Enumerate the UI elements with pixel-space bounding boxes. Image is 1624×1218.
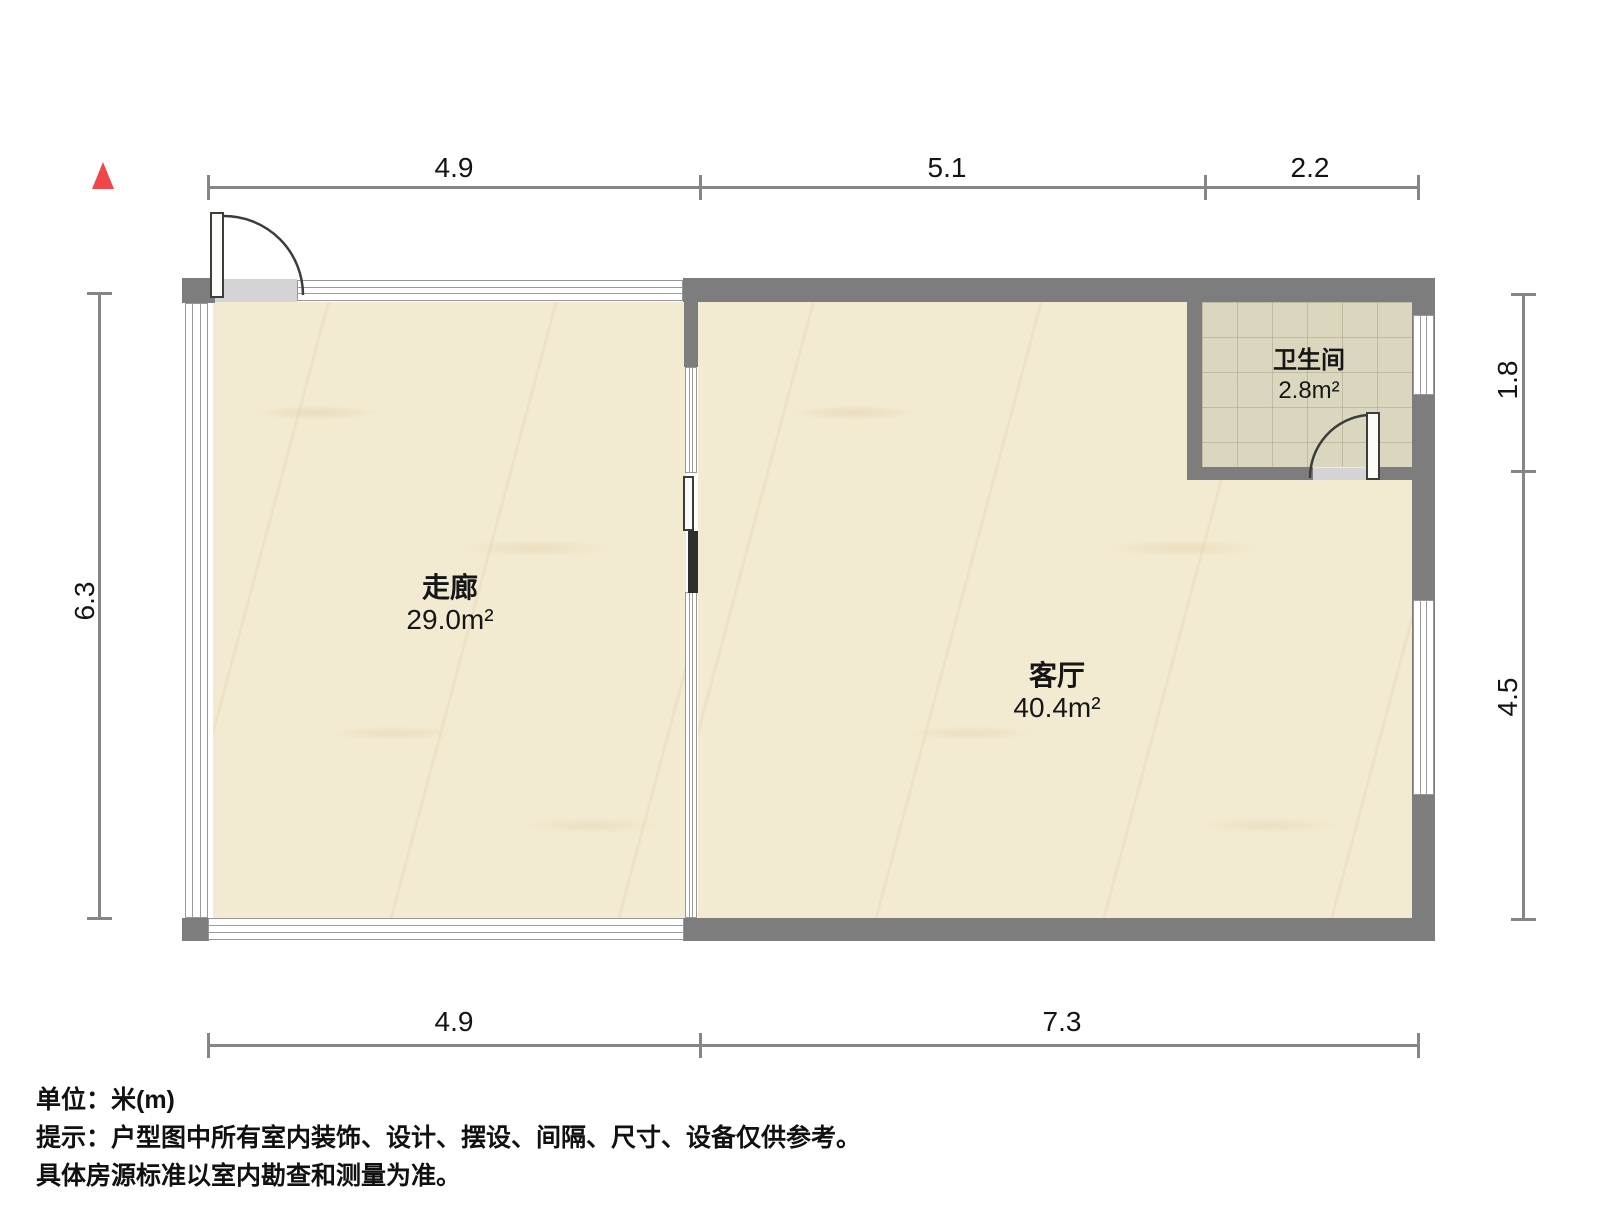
room-name: 卫生间	[1209, 346, 1409, 376]
wall-bottom-left-corner	[182, 918, 209, 941]
wall-bathroom-bottom-right	[1378, 467, 1412, 480]
dim-label-right-1: 1.8	[1493, 320, 1523, 440]
window-bathroom-right	[1413, 315, 1434, 395]
dim-label-bottom-1: 4.9	[354, 1006, 554, 1038]
room-label-corridor: 走廊 29.0m²	[350, 572, 550, 636]
entry-door-threshold	[215, 279, 297, 302]
dim-tick	[1417, 1033, 1420, 1058]
dim-tick	[1417, 175, 1420, 200]
room-name: 走廊	[350, 572, 550, 604]
note-unit: 单位：米(m)	[36, 1080, 175, 1116]
window-partition-lower	[685, 592, 697, 918]
note-tip-line1: 提示：户型图中所有室内装饰、设计、摆设、间隔、尺寸、设备仅供参考。	[36, 1118, 861, 1154]
dim-label-top-1: 4.9	[354, 152, 554, 184]
dim-tick	[207, 175, 210, 200]
room-area: 2.8m²	[1209, 376, 1409, 406]
dim-tick	[87, 292, 112, 295]
wall-bottom-living	[683, 918, 1435, 941]
wall-top-living	[683, 278, 1435, 302]
dim-tick	[207, 1033, 210, 1058]
dim-tick	[87, 917, 112, 920]
sliding-door-panel-light	[683, 476, 694, 531]
dim-line-top	[208, 186, 1420, 189]
dim-tick	[1511, 293, 1536, 296]
dim-tick	[699, 175, 702, 200]
north-arrow-icon	[92, 162, 114, 189]
room-area: 29.0m²	[350, 604, 550, 636]
dim-tick	[699, 1033, 702, 1058]
room-name: 客厅	[957, 660, 1157, 692]
room-area: 40.4m²	[957, 692, 1157, 724]
floorplan-canvas: 4.9 5.1 2.2 4.9 7.3 6.3 1.8 4.5	[0, 0, 1624, 1218]
note-tip-line2: 具体房源标准以室内勘查和测量为准。	[36, 1156, 461, 1192]
dim-tick	[1204, 175, 1207, 200]
dim-label-left-1: 6.3	[70, 541, 100, 661]
window-top-corridor	[297, 280, 683, 301]
entry-door-leaf	[210, 212, 224, 298]
dim-label-top-3: 2.2	[1210, 152, 1410, 184]
room-label-bathroom: 卫生间 2.8m²	[1209, 346, 1409, 406]
dim-label-bottom-2: 7.3	[962, 1006, 1162, 1038]
dim-label-right-2: 4.5	[1493, 637, 1523, 757]
wall-bathroom-bottom-left	[1187, 467, 1313, 480]
bathroom-door-leaf	[1366, 412, 1380, 480]
dim-line-bottom	[208, 1044, 1420, 1047]
window-left-corridor	[185, 303, 208, 918]
wall-bathroom-left	[1187, 302, 1202, 480]
dim-label-top-2: 5.1	[847, 152, 1047, 184]
window-bottom-corridor	[208, 918, 684, 940]
window-living-right	[1413, 600, 1434, 795]
wall-partition-stub	[684, 302, 698, 367]
window-partition-upper	[685, 367, 697, 473]
sliding-door-panel-dark	[688, 531, 698, 593]
room-label-living: 客厅 40.4m²	[957, 660, 1157, 724]
dim-tick	[1511, 470, 1536, 473]
dim-tick	[1511, 918, 1536, 921]
